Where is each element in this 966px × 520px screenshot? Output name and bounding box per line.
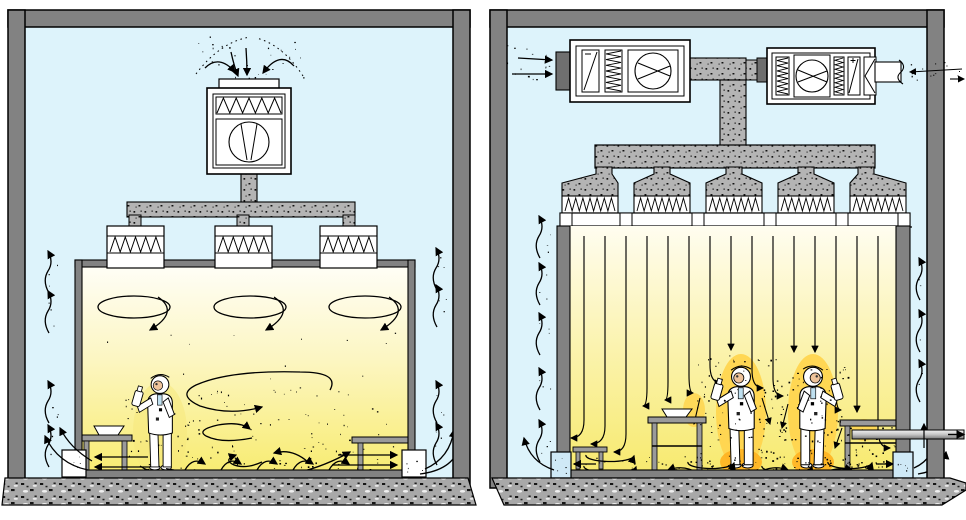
bowl (662, 409, 692, 417)
cleanroom-airflow-diagram (0, 0, 966, 520)
makeup-air-handler (556, 40, 690, 102)
ceiling-filter-boxes (107, 226, 377, 268)
cleanroom-interior (570, 226, 896, 476)
ceiling-filter-bank (558, 196, 912, 227)
laminar-cleanroom-panel (490, 10, 966, 505)
concrete-floor (2, 478, 476, 505)
concrete-floor (492, 478, 966, 505)
bowl (94, 426, 124, 435)
air-handling-unit (207, 79, 291, 174)
turbulent-cleanroom-panel (2, 10, 476, 505)
cleanroom-interior (80, 267, 408, 482)
